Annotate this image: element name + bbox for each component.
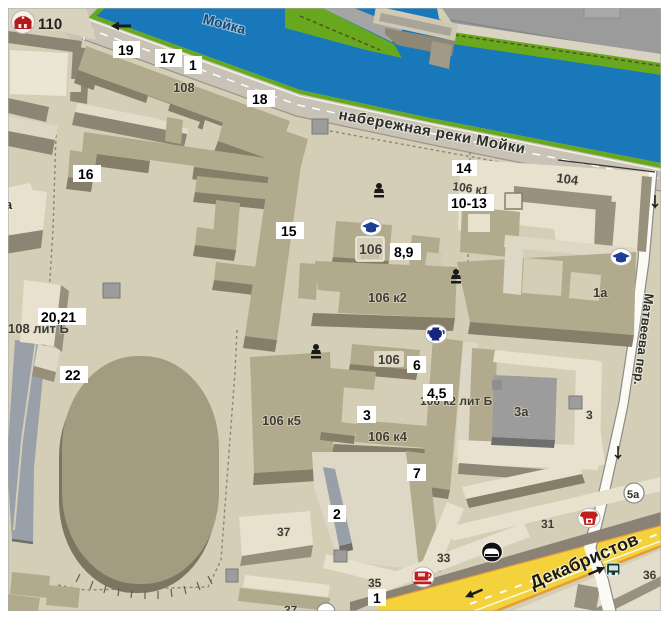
svg-text:106 к5: 106 к5 <box>262 413 301 428</box>
svg-text:19: 19 <box>118 42 134 58</box>
svg-text:16: 16 <box>78 166 94 182</box>
svg-text:36: 36 <box>643 568 657 582</box>
svg-text:110: 110 <box>38 16 62 33</box>
svg-text:35: 35 <box>368 576 382 590</box>
svg-text:17: 17 <box>160 50 176 66</box>
svg-text:14: 14 <box>456 160 472 176</box>
svg-text:1: 1 <box>189 57 197 73</box>
svg-text:3: 3 <box>363 407 371 423</box>
svg-text:1а: 1а <box>593 285 608 300</box>
svg-text:18: 18 <box>252 91 268 107</box>
svg-text:6: 6 <box>413 357 421 373</box>
svg-text:3а: 3а <box>514 404 529 419</box>
svg-text:106: 106 <box>378 352 400 367</box>
svg-text:4,5: 4,5 <box>427 385 447 401</box>
svg-text:10-13: 10-13 <box>451 195 487 211</box>
svg-text:20,21: 20,21 <box>41 309 76 325</box>
svg-text:106 к4: 106 к4 <box>368 429 408 444</box>
svg-text:22: 22 <box>65 367 81 383</box>
svg-text:7: 7 <box>413 465 421 481</box>
svg-text:106: 106 <box>359 241 383 257</box>
svg-text:31: 31 <box>541 517 555 531</box>
svg-text:3: 3 <box>586 408 593 422</box>
svg-text:8,9: 8,9 <box>394 244 414 260</box>
svg-text:5а: 5а <box>627 489 640 501</box>
svg-text:106 к2: 106 к2 <box>368 290 407 305</box>
svg-text:33: 33 <box>437 551 451 565</box>
svg-text:108: 108 <box>173 80 195 95</box>
svg-text:15: 15 <box>281 223 297 239</box>
svg-text:37: 37 <box>277 525 291 539</box>
svg-text:104: 104 <box>556 170 580 188</box>
svg-text:1: 1 <box>373 590 381 606</box>
svg-text:2: 2 <box>333 506 341 522</box>
